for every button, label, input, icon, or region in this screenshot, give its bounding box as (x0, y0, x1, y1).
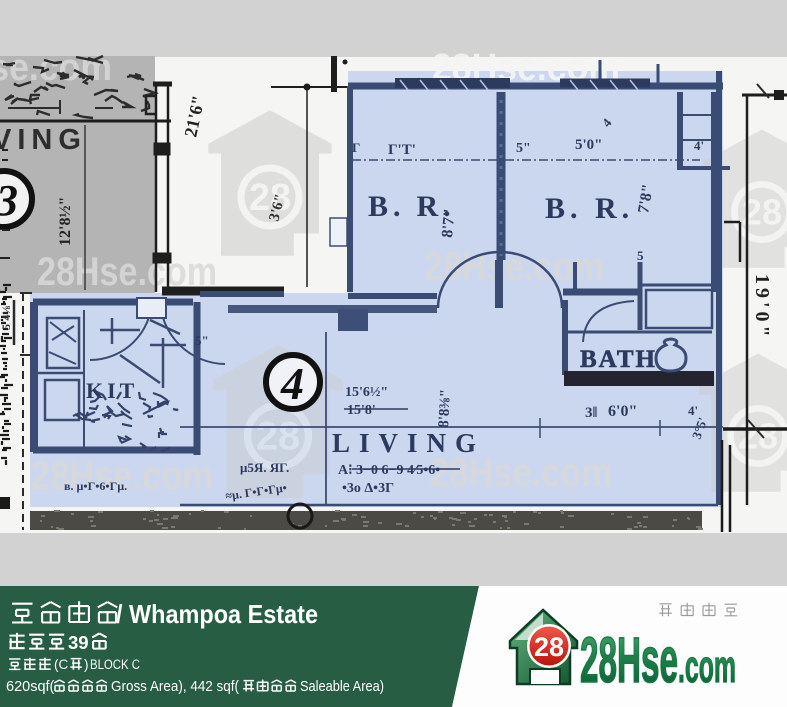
svg-text:μ5Я. ЯГ.: μ5Я. ЯГ. (240, 460, 289, 475)
svg-text:BATH: BATH (580, 346, 657, 373)
svg-text:VING: VING (0, 124, 87, 156)
svg-text:28: 28 (256, 415, 300, 459)
svg-text:(C: (C (54, 657, 68, 672)
svg-text:28Hse.com: 28Hse.com (0, 47, 112, 89)
svg-text:/ Whampoa Estate: / Whampoa Estate (116, 599, 318, 629)
svg-text:Г: Г (352, 140, 360, 155)
svg-text:B. R.: B. R. (545, 192, 634, 225)
svg-text:28: 28 (738, 415, 778, 456)
svg-text:.com: .com (678, 641, 736, 692)
svg-text:в. µ•Г•6•Гµ.: в. µ•Г•6•Гµ. (64, 479, 127, 493)
svg-text:3: 3 (0, 176, 18, 225)
svg-text:Г'T': Г'T' (388, 142, 416, 158)
svg-text:4: 4 (280, 358, 304, 409)
svg-text:5'4⅛: 5'4⅛ (0, 306, 13, 330)
svg-text:5": 5" (195, 333, 209, 348)
svg-text:KIT: KIT (86, 378, 138, 403)
svg-text:A⁝ 3−0 6−9 4∕5•6•: A⁝ 3−0 6−9 4∕5•6• (338, 463, 440, 478)
svg-text:6'0": 6'0" (608, 403, 637, 420)
svg-text:15'8': 15'8' (347, 403, 376, 418)
svg-text:8'8⅜": 8'8⅜" (436, 389, 454, 429)
svg-text:15'6½": 15'6½" (345, 385, 388, 400)
svg-text:Saleable Area): Saleable Area) (300, 679, 384, 695)
svg-text:BLOCK C: BLOCK C (90, 657, 140, 672)
svg-text:): ) (84, 657, 89, 672)
svg-text:5'0": 5'0" (575, 137, 603, 153)
svg-text:8'7": 8'7" (439, 208, 458, 239)
svg-text:620sqf(: 620sqf( (6, 679, 55, 695)
svg-text:5": 5" (516, 141, 531, 156)
svg-text:4': 4' (694, 138, 704, 153)
svg-text:3‖: 3‖ (585, 405, 598, 421)
svg-text:19'0": 19'0" (751, 274, 773, 341)
svg-text:LIVING: LIVING (332, 428, 485, 458)
svg-text:12'8½": 12'8½" (57, 197, 74, 246)
svg-text:28Hse: 28Hse (580, 624, 678, 696)
svg-text:Gross Area), 442 sqf(: Gross Area), 442 sqf( (111, 679, 239, 695)
svg-text:39: 39 (68, 632, 89, 653)
svg-text:5: 5 (637, 248, 644, 263)
svg-text:•3o Δ•3Г: •3o Δ•3Г (342, 481, 394, 496)
svg-text:28: 28 (534, 632, 564, 662)
